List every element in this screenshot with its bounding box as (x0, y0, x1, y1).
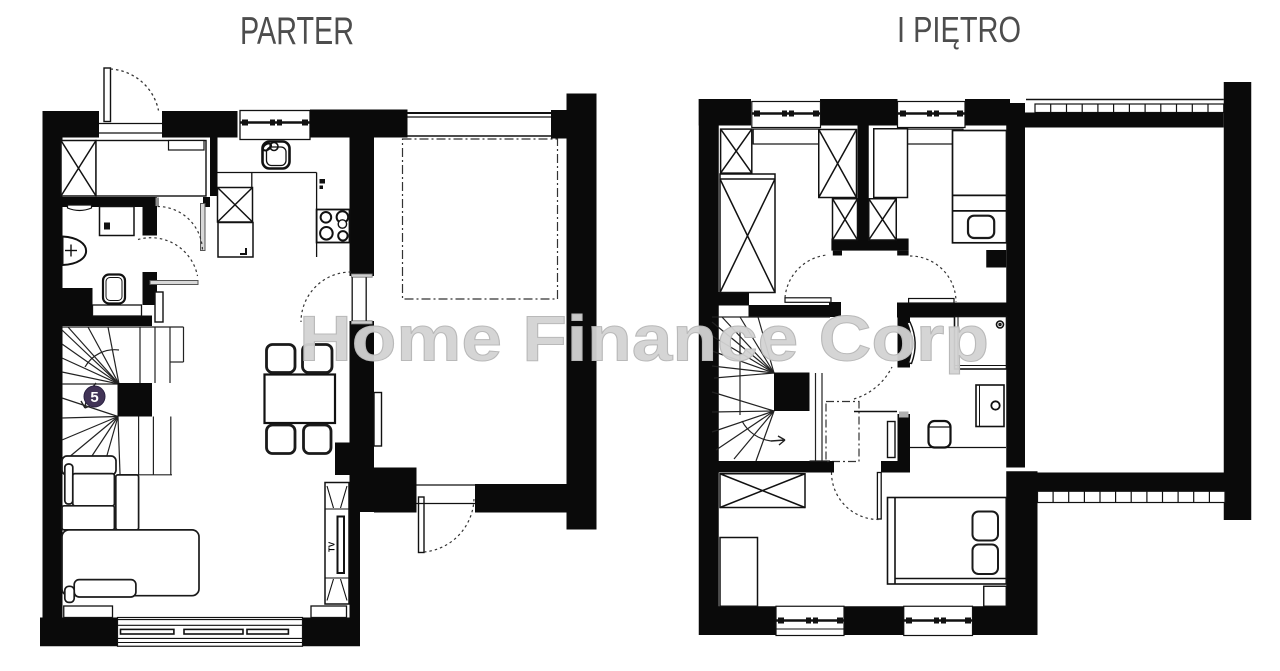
svg-text:Home Finance Corp: Home Finance Corp (299, 303, 989, 375)
svg-text:PARTER: PARTER (240, 10, 354, 53)
svg-text:I PIĘTRO: I PIĘTRO (897, 9, 1021, 50)
svg-text:TV: TV (328, 541, 337, 552)
svg-text:5: 5 (90, 389, 98, 406)
